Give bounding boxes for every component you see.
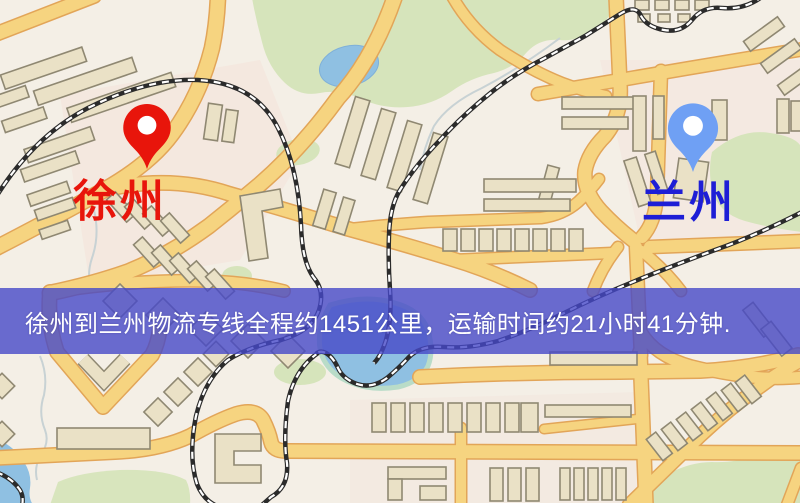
destination-pin-hole — [683, 116, 703, 136]
row-c — [560, 468, 626, 500]
logistics-route-map: 徐州 兰州 徐州到兰州物流专线全程约1451公里，运输时间约21小时41分钟. — [0, 0, 800, 503]
map-canvas: 徐州 兰州 — [0, 0, 800, 503]
info-banner: 徐州到兰州物流专线全程约1451公里，运输时间约21小时41分钟. — [0, 288, 800, 354]
row-a — [372, 403, 538, 432]
destination-label: 兰州 — [642, 178, 736, 227]
long-building-bottom-left — [57, 428, 150, 449]
origin-pin-hole — [138, 116, 157, 135]
route-summary-text: 徐州到兰州物流专线全程约1451公里，运输时间约21小时41分钟. — [25, 304, 731, 339]
origin-label: 徐州 — [72, 177, 167, 226]
row-b — [490, 468, 539, 501]
